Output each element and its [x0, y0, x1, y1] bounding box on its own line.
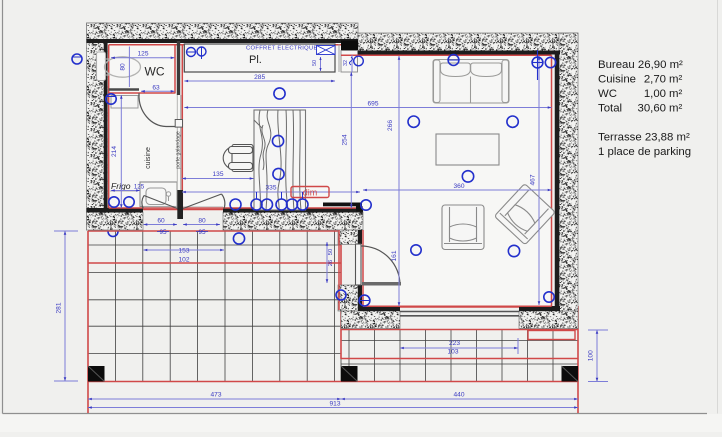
svg-text:125: 125: [137, 51, 148, 58]
svg-text:WC: WC: [145, 65, 165, 79]
svg-text:100: 100: [588, 350, 595, 361]
svg-text:95: 95: [198, 229, 206, 236]
svg-text:Pl.: Pl.: [249, 54, 262, 66]
svg-text:913: 913: [329, 401, 340, 408]
svg-text:60: 60: [157, 218, 165, 225]
svg-text:266: 266: [387, 120, 394, 131]
svg-text:WC: WC: [598, 88, 617, 100]
svg-text:281: 281: [56, 302, 63, 313]
svg-text:32: 32: [343, 60, 349, 66]
svg-text:1,00: 1,00: [644, 88, 666, 100]
svg-text:cuisine: cuisine: [145, 147, 152, 169]
svg-text:102: 102: [178, 257, 189, 264]
svg-text:285: 285: [254, 74, 265, 81]
svg-text:63: 63: [152, 85, 160, 92]
svg-text:COFFRET ELECTRIQUE: COFFRET ELECTRIQUE: [246, 46, 318, 52]
svg-text:161: 161: [391, 250, 398, 261]
svg-text:Total: Total: [598, 103, 622, 115]
svg-text:360: 360: [453, 183, 464, 190]
svg-text:103: 103: [447, 349, 458, 356]
svg-text:254: 254: [342, 134, 349, 145]
svg-text:80: 80: [120, 63, 127, 71]
svg-text:1 place de parking: 1 place de parking: [598, 146, 691, 158]
svg-text:125: 125: [134, 184, 145, 191]
svg-text:Bureau 26,90 m²: Bureau 26,90 m²: [598, 59, 683, 71]
svg-text:50: 50: [328, 249, 334, 255]
svg-text:214: 214: [111, 146, 118, 157]
svg-text:50: 50: [312, 60, 318, 66]
svg-text:30,60: 30,60: [637, 103, 666, 115]
svg-text:Cuisine: Cuisine: [598, 74, 636, 86]
svg-text:335: 335: [265, 185, 276, 192]
svg-text:223: 223: [449, 340, 460, 347]
svg-text:Terrasse 23,88 m²: Terrasse 23,88 m²: [598, 132, 690, 144]
svg-text:467: 467: [530, 174, 537, 185]
svg-text:porte galandage: porte galandage: [176, 131, 182, 169]
svg-text:m²: m²: [669, 74, 682, 86]
svg-text:695: 695: [367, 101, 378, 108]
svg-text:m²: m²: [669, 103, 682, 115]
svg-text:440: 440: [453, 392, 464, 399]
svg-text:473: 473: [210, 392, 221, 399]
svg-text:80: 80: [198, 218, 206, 225]
svg-text:2,70: 2,70: [644, 74, 666, 86]
svg-text:26: 26: [328, 260, 334, 266]
svg-text:135: 135: [212, 171, 223, 178]
svg-text:95: 95: [159, 229, 167, 236]
svg-text:153: 153: [178, 248, 189, 255]
svg-text:dim: dim: [303, 188, 318, 198]
svg-text:m²: m²: [669, 88, 682, 100]
